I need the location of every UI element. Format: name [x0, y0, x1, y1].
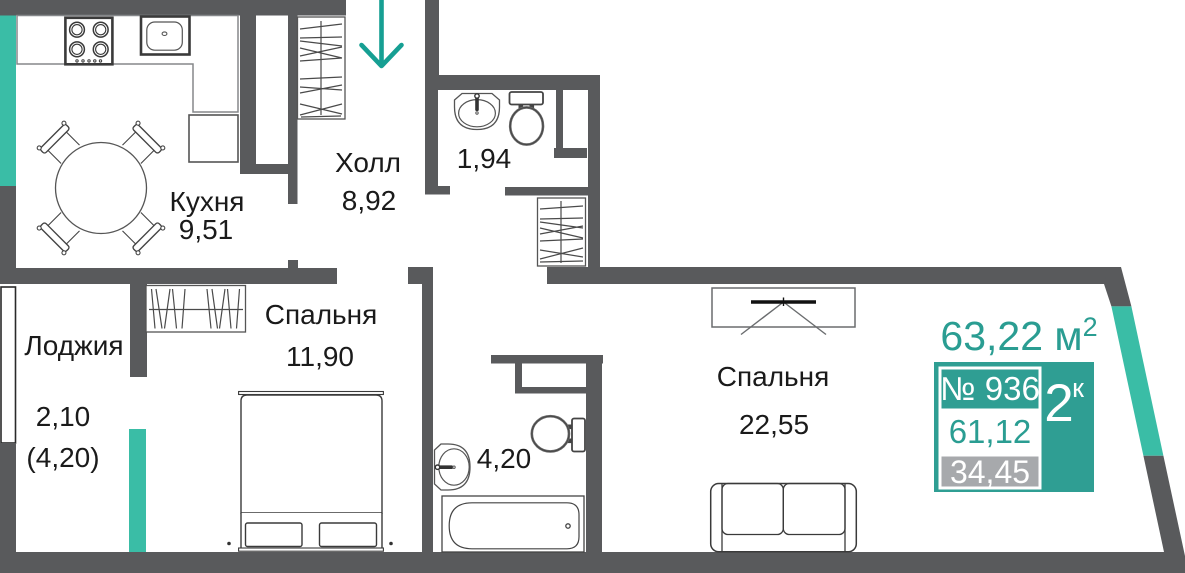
svg-text:22,55: 22,55: [739, 409, 809, 440]
svg-text:63,22 м2: 63,22 м2: [940, 312, 1097, 359]
svg-text:Кухня: Кухня: [170, 186, 245, 217]
svg-text:Лоджия: Лоджия: [24, 330, 123, 361]
svg-text:(4,20): (4,20): [26, 442, 99, 473]
svg-text:9,51: 9,51: [179, 214, 234, 245]
svg-text:Холл: Холл: [335, 147, 401, 178]
svg-text:Спальня: Спальня: [717, 361, 830, 392]
svg-text:№ 936: № 936: [940, 370, 1040, 407]
svg-text:Спальня: Спальня: [265, 299, 378, 330]
svg-text:2,10: 2,10: [36, 401, 91, 432]
svg-text:к: к: [1072, 373, 1084, 403]
svg-text:2: 2: [1044, 374, 1073, 433]
svg-text:1,94: 1,94: [457, 143, 512, 174]
svg-text:61,12: 61,12: [949, 413, 1032, 450]
svg-text:34,45: 34,45: [950, 454, 1030, 490]
svg-text:4,20: 4,20: [477, 443, 532, 474]
svg-text:8,92: 8,92: [342, 185, 397, 216]
svg-text:11,90: 11,90: [286, 341, 354, 372]
